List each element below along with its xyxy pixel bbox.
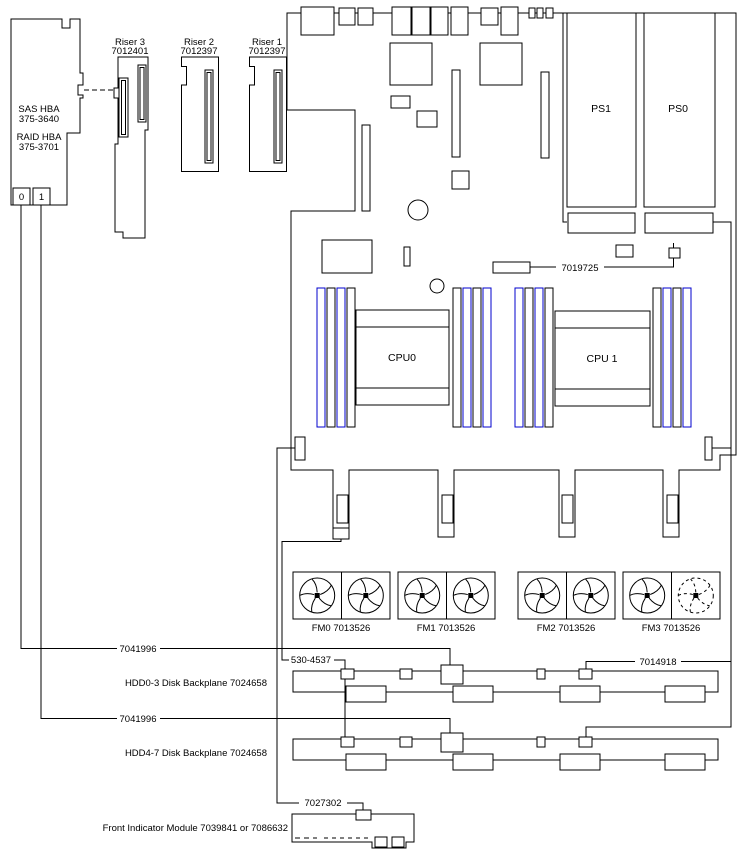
sas-input-connector <box>441 665 463 684</box>
hba-port0-label: 0 <box>19 192 24 203</box>
sas-input-connector <box>441 733 463 752</box>
rear-io-connectors <box>301 7 553 35</box>
pcie-slot <box>541 72 549 158</box>
midwall-connector-right <box>705 437 712 460</box>
front-button <box>392 837 404 847</box>
backplane-hdd4-7 <box>293 733 718 770</box>
cpu0-label: CPU0 <box>388 352 416 364</box>
riser3-card <box>114 57 148 238</box>
front-indicator-module <box>292 810 414 848</box>
ps0-label: PS0 <box>668 103 688 115</box>
midwall-connector-left <box>295 437 305 460</box>
front-button <box>375 837 387 847</box>
cable-7041996-label-2: 7041996 <box>120 714 157 725</box>
pcie-slot <box>452 70 460 157</box>
cabling-diagram: Riser 3 7012401 Riser 2 7012397 Riser 1 … <box>0 0 741 854</box>
ps1-connector <box>568 213 635 233</box>
chip-b <box>480 43 522 85</box>
fan-power-header <box>669 248 680 258</box>
cable-ps1-power <box>563 13 567 222</box>
cable-7041996-label-1: 7041996 <box>120 644 157 655</box>
cable-7027302-label: 7027302 <box>305 798 342 809</box>
fan-power-connector <box>493 262 530 273</box>
hba-port1-label: 1 <box>39 192 44 203</box>
pcie-slot <box>362 125 370 211</box>
fm0-label: FM0 7013526 <box>312 623 371 634</box>
hba-raid-part: 375-3701 <box>19 142 59 153</box>
cable-sas-port1 <box>41 205 450 733</box>
fan-board-connector <box>562 495 573 523</box>
fm1-label: FM1 7013526 <box>417 623 476 634</box>
mount-hole <box>408 200 428 220</box>
power-supplies <box>567 13 715 233</box>
backplane-hdd0-3-label: HDD0-3 Disk Backplane 7024658 <box>125 678 267 689</box>
fan-board-connector <box>667 495 678 523</box>
cable-530-4537 <box>282 539 345 737</box>
cpu1-label: CPU 1 <box>587 353 618 365</box>
fm3-label: FM3 7013526 <box>642 623 701 634</box>
riser2-part: 7012397 <box>181 46 218 57</box>
cable-7019725-label: 7019725 <box>562 263 599 274</box>
riser1-card <box>250 57 287 172</box>
fan-board-aux-connector <box>333 528 349 539</box>
ps0-connector <box>645 213 713 233</box>
cable-530-4537-label: 530-4537 <box>291 655 331 666</box>
fan-modules <box>293 572 720 619</box>
hba-sas-part: 375-3640 <box>19 114 59 125</box>
chip-a <box>390 43 432 85</box>
backplane-hdd4-7-label: HDD4-7 Disk Backplane 7024658 <box>125 748 267 759</box>
mount-hole <box>430 279 444 293</box>
cable-7019725 <box>530 243 674 267</box>
fan-board-connector <box>337 495 348 523</box>
ps1-label: PS1 <box>591 103 611 115</box>
cable-7014918-label: 7014918 <box>640 657 677 668</box>
front-indicator-label: Front Indicator Module 7039841 or 708663… <box>103 823 288 834</box>
riser3-part: 7012401 <box>112 46 149 57</box>
backplane-hdd0-3 <box>293 665 718 702</box>
fan-board-connector <box>442 495 453 523</box>
riser2-card <box>182 57 219 172</box>
riser1-part: 7012397 <box>249 46 286 57</box>
fm2-label: FM2 7013526 <box>537 623 596 634</box>
